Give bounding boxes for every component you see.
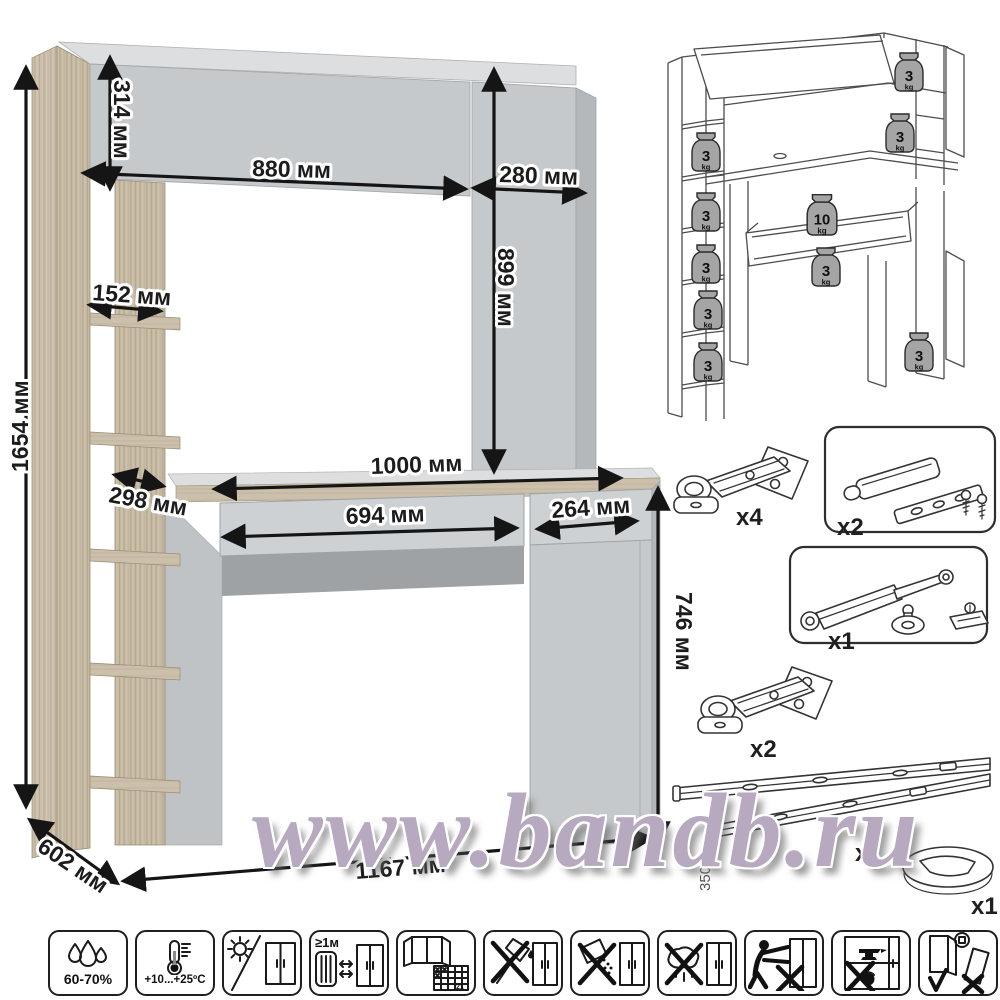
dim-side-cabinet-width: 280 мм xyxy=(499,161,579,190)
sun-slash-cabinet-icon xyxy=(226,935,298,991)
water-drops-icon xyxy=(65,940,111,972)
weight-icon: 3 kg xyxy=(694,291,722,330)
svg-text:kg: kg xyxy=(915,363,924,372)
grommet-qty: x1 xyxy=(971,893,998,920)
care-icon-no-wet-cloth xyxy=(657,930,737,996)
hinge-qty: x4 xyxy=(736,504,763,531)
heat-distance-label: ≥1м xyxy=(315,935,339,950)
open-lower-door xyxy=(946,251,964,367)
care-icon-temperature: +10...+25ºC xyxy=(135,930,215,996)
svg-text:kg: kg xyxy=(704,321,713,330)
no-powder-cabinet-icon xyxy=(574,935,646,991)
care-icons-row: 60-70% +10...+25ºC ≥1м xyxy=(48,930,998,996)
care-icon-no-overload xyxy=(831,930,911,996)
svg-text:kg: kg xyxy=(702,163,711,172)
no-wet-sponge-cabinet-icon xyxy=(661,935,733,991)
hinge-icon xyxy=(698,667,832,733)
window-calendar-icon: 21 xyxy=(400,935,472,991)
calendar-day-label: 21 xyxy=(456,984,464,991)
humidity-label: 60-70% xyxy=(64,972,112,986)
weight-icon: 3 kg xyxy=(692,193,720,232)
care-icon-humidity: 60-70% xyxy=(48,930,128,996)
hinge2-qty: x2 xyxy=(750,736,777,763)
thermometer-icon xyxy=(158,939,192,975)
dim-door-width: 264 мм xyxy=(551,492,631,523)
temperature-label: +10...+25ºC xyxy=(144,975,205,987)
care-icon-transport-upright xyxy=(918,930,998,996)
weight-icon: 3 kg xyxy=(694,343,722,382)
svg-text:kg: kg xyxy=(822,278,831,287)
open-flap-door xyxy=(694,35,894,99)
dim-opening-height: 899 мм xyxy=(493,248,519,327)
weight-icon: 3 kg xyxy=(692,245,720,284)
care-icon-no-dragging xyxy=(744,930,824,996)
care-icon-no-sharp-objects xyxy=(483,930,563,996)
watermark: www.bandb.ru xyxy=(252,778,920,884)
gas-lift-qty: x1 xyxy=(828,628,855,655)
svg-text:kg: kg xyxy=(704,373,713,382)
weight-icon: 3 kg xyxy=(886,114,914,153)
weight-icon: 3 kg xyxy=(692,133,720,172)
dim-total-height: 1654 мм xyxy=(7,380,33,472)
weight-icon: 3 kg xyxy=(905,333,933,372)
no-heavy-items-icon xyxy=(835,935,907,991)
care-icon-no-sunlight xyxy=(222,930,302,996)
cable-hole xyxy=(774,154,786,159)
latch-qty: x2 xyxy=(837,514,864,541)
no-drag-person-icon xyxy=(748,935,820,991)
upright-vs-tilted-icon xyxy=(922,932,994,994)
dim-hutch-height: 314 мм xyxy=(109,80,135,159)
dim-drawer-width: 694 мм xyxy=(345,500,425,529)
dim-hutch-width: 880 мм xyxy=(252,155,331,183)
svg-text:kg: kg xyxy=(702,275,711,284)
weight-icon: 3 kg xyxy=(895,53,923,92)
open-upper-door xyxy=(946,47,964,157)
product-dimension-sheet: 1654 мм 314 мм 880 мм 280 мм 899 мм 152 … xyxy=(0,0,1000,1000)
care-icon-heat-distance: ≥1м xyxy=(309,930,389,996)
svg-text:kg: kg xyxy=(896,144,905,153)
care-icon-no-abrasives xyxy=(570,930,650,996)
dim-desktop-width: 1000 мм xyxy=(370,450,462,479)
weight-icon: 10 kg xyxy=(807,195,837,236)
dim-shelf-width: 152 мм xyxy=(92,279,172,310)
no-axe-cabinet-icon xyxy=(487,935,559,991)
radiator-distance-icon: ≥1м xyxy=(313,935,385,991)
svg-text:kg: kg xyxy=(905,83,914,92)
care-icon-ventilation: 21 xyxy=(396,930,476,996)
svg-text:kg: kg xyxy=(702,223,711,232)
svg-text:kg: kg xyxy=(817,226,826,235)
load-capacity-diagram: 3 kg 3 kg 3 kg 3 kg 3 kg 3 kg xyxy=(660,25,1000,430)
